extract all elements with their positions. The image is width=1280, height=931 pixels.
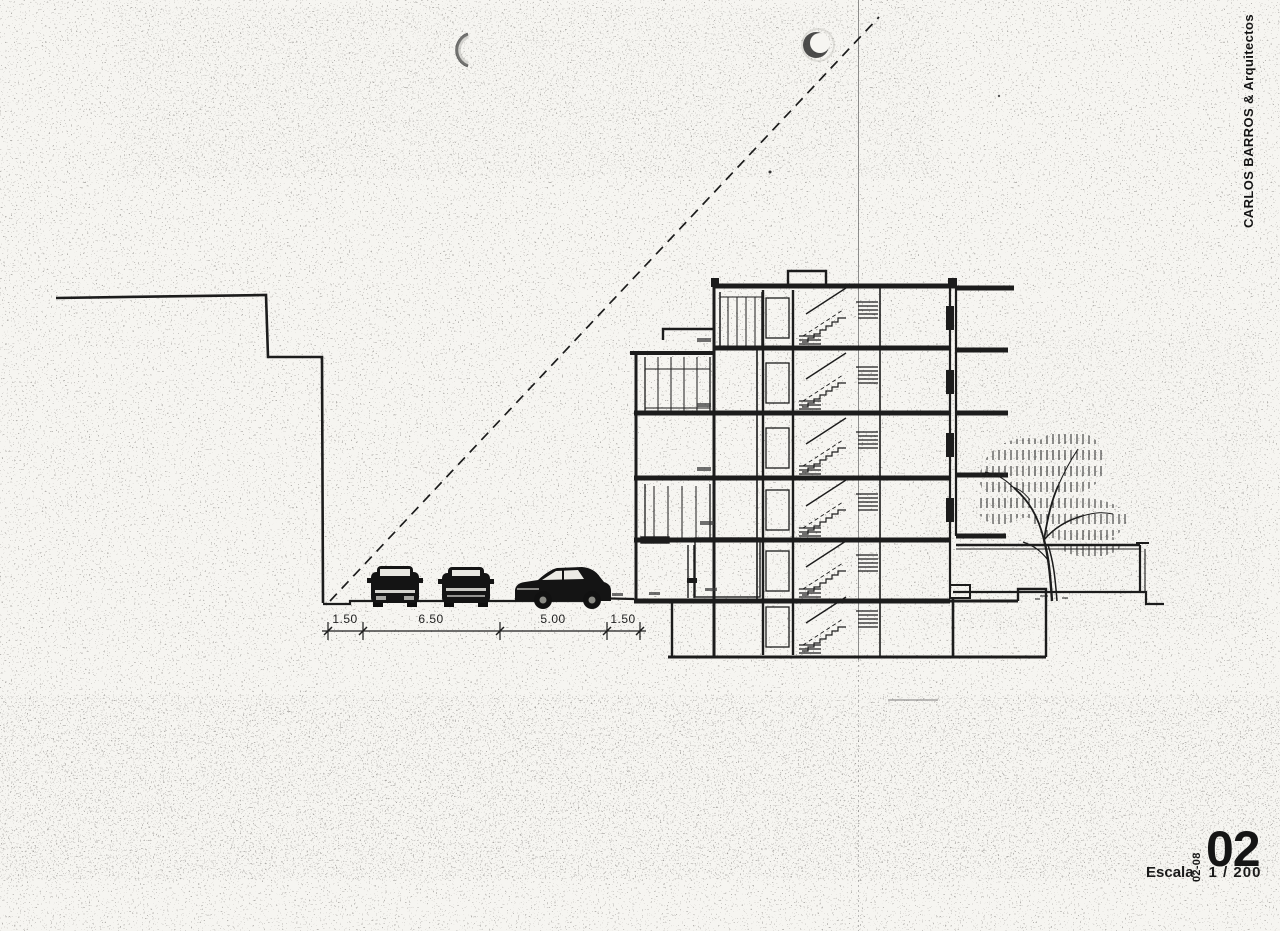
dimension-label-sidewalk-right: 1.50 — [610, 612, 635, 626]
scale-label: Escala — [1146, 864, 1194, 881]
parapet-left — [711, 278, 719, 287]
dimension-label-roadway: 6.50 — [418, 612, 443, 626]
section-drawing — [0, 0, 1280, 931]
parapet-right — [948, 278, 957, 287]
car-front-view — [367, 566, 423, 607]
punch-hole-artifact-right — [802, 29, 834, 61]
dimension-label-parking: 5.00 — [540, 612, 565, 626]
architect-name: CARLOS BARROS & Arquitectos — [1241, 14, 1256, 228]
scanned-drawing-sheet: CARLOS BARROS & Arquitectos 02-08 02 Esc… — [0, 0, 1280, 931]
dimension-label-sidewalk-left: 1.50 — [332, 612, 357, 626]
scale-block: Escala 1 / 200 — [1146, 864, 1261, 881]
scale-value: 1 / 200 — [1209, 864, 1262, 881]
